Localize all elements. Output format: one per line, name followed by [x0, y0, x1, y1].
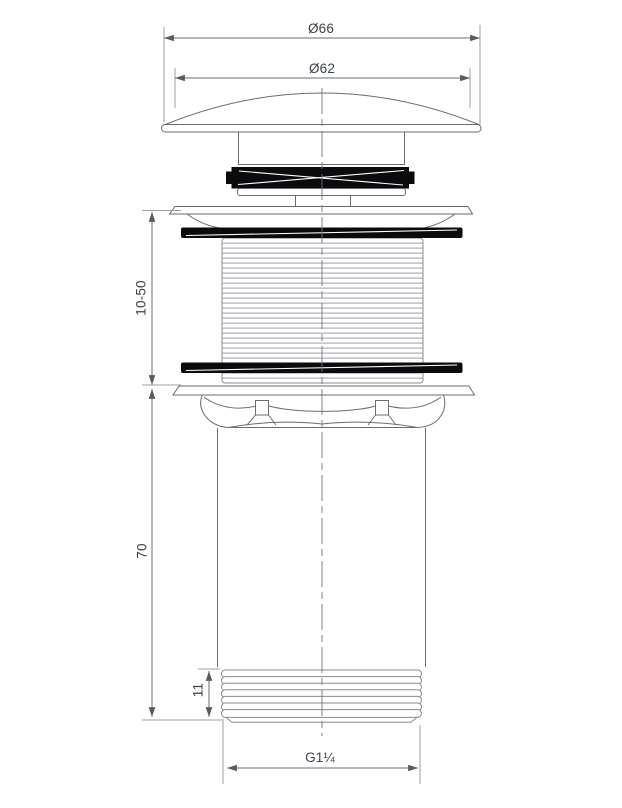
lower-thread [222, 670, 422, 722]
body [218, 428, 426, 667]
flange-nut [173, 386, 475, 428]
dim-label-body-length: 70 [135, 543, 149, 558]
dim-label-lower-thread-length: 11 [191, 683, 205, 697]
top-flange [170, 207, 473, 229]
dim-body-length [142, 389, 224, 720]
technical-drawing: Ø66 Ø62 10-50 70 11 G1¼ [0, 0, 622, 808]
dim-label-thread-size: G1¼ [305, 751, 335, 765]
dim-label-clamping-range: 10-50 [134, 280, 148, 316]
drawing-linework [0, 0, 622, 808]
cap [162, 93, 482, 165]
dim-label-cap-visible-diameter: Ø62 [309, 62, 335, 76]
upper-thread [222, 238, 423, 383]
dim-label-cap-outer-diameter: Ø66 [308, 22, 334, 36]
seal-gasket [227, 168, 415, 207]
